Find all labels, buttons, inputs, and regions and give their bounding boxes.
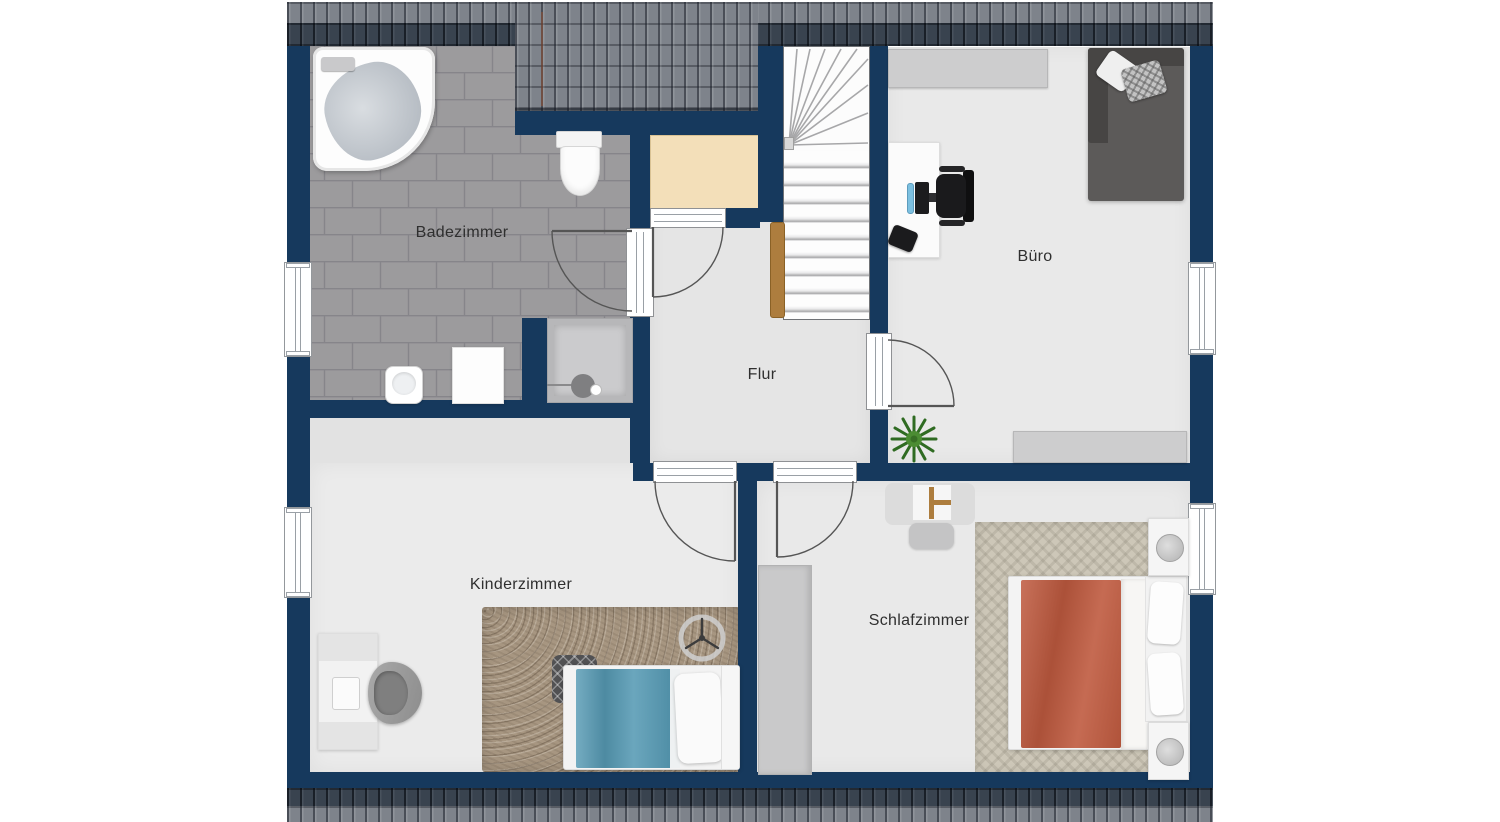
table-lamp: [1156, 534, 1184, 562]
wall-shelf: [888, 49, 1048, 88]
window-pane: [295, 513, 301, 592]
door-threshold-closet: [650, 208, 726, 228]
shower: [547, 318, 633, 403]
winder-steps: [784, 47, 869, 151]
sofa: [1088, 48, 1184, 201]
blue-duvet: [576, 669, 672, 768]
newel-post: [784, 137, 794, 150]
tablet: [332, 677, 360, 710]
wardrobe: [758, 565, 812, 775]
floor-plan: Badezimmer Flur Büro Kinderzimmer Schlaf…: [0, 0, 1500, 822]
wall-closet-bottom: [726, 208, 760, 228]
sideboard: [1013, 431, 1187, 463]
stool: [909, 523, 954, 549]
shower-arm: [547, 384, 573, 386]
wall-shower-partition: [522, 318, 547, 403]
water-bottle: [907, 183, 914, 214]
window-pane: [1199, 268, 1205, 349]
double-bed: [1008, 576, 1150, 750]
window-bathroom: [284, 262, 312, 357]
door-threshold-bedroom: [773, 461, 857, 483]
room-label-buero: Büro: [1018, 248, 1053, 266]
room-label-flur: Flur: [748, 366, 777, 384]
room-label-kinderzimmer: Kinderzimmer: [470, 576, 572, 594]
bathtub-faucet: [321, 57, 355, 71]
window-bedroom: [1188, 503, 1216, 595]
roof-bottom-inner-row: [287, 788, 1213, 806]
red-duvet: [1021, 580, 1121, 748]
wall-dormer-band: [515, 108, 758, 135]
staircase: [783, 46, 870, 320]
bed-pillows: [1145, 576, 1187, 722]
door-threshold-office: [866, 333, 892, 410]
shower-knob: [590, 384, 602, 396]
bed-pillow: [674, 672, 725, 764]
sink: [385, 366, 423, 404]
nightstand-top: [1148, 518, 1189, 576]
roof-valley-line: [541, 12, 543, 106]
door-threshold-bathroom: [626, 228, 654, 317]
pillow: [1147, 581, 1184, 645]
bathtub-basin: [316, 54, 430, 168]
room-label-badezimmer: Badezimmer: [416, 224, 509, 242]
wooden-chair-seat: [929, 500, 951, 505]
closet-niche-floor: [650, 135, 760, 210]
nightstand-bottom: [1148, 722, 1189, 780]
headboard: [721, 666, 739, 769]
straight-steps: [784, 151, 869, 319]
roof-dormer: [515, 2, 758, 111]
wall-outer-right: [1190, 45, 1213, 790]
office-chair: [936, 166, 974, 226]
roof-bottom-outer-row: [287, 806, 1213, 822]
sink-basin: [392, 372, 416, 395]
potted-plant: [889, 414, 939, 464]
window-office: [1188, 262, 1216, 355]
stair-handrail: [770, 222, 785, 318]
monitor: [915, 182, 929, 214]
folded-sheet: [1121, 579, 1147, 749]
pillow: [1147, 652, 1184, 716]
child-bed: [563, 665, 740, 770]
window-pane: [295, 268, 301, 351]
door-threshold-child-room: [653, 461, 737, 483]
bathroom-cabinet: [452, 347, 504, 404]
wall-closet-stairs: [758, 45, 783, 222]
room-label-schlafzimmer: Schlafzimmer: [869, 612, 970, 630]
child-room-eave-band: [310, 418, 633, 464]
monitor-stand: [929, 193, 936, 202]
window-child-room: [284, 507, 312, 598]
window-pane: [1199, 509, 1205, 589]
wall-child-bedroom-divider: [738, 481, 757, 772]
table-lamp: [1156, 738, 1184, 766]
ceiling-fan: [677, 613, 727, 663]
